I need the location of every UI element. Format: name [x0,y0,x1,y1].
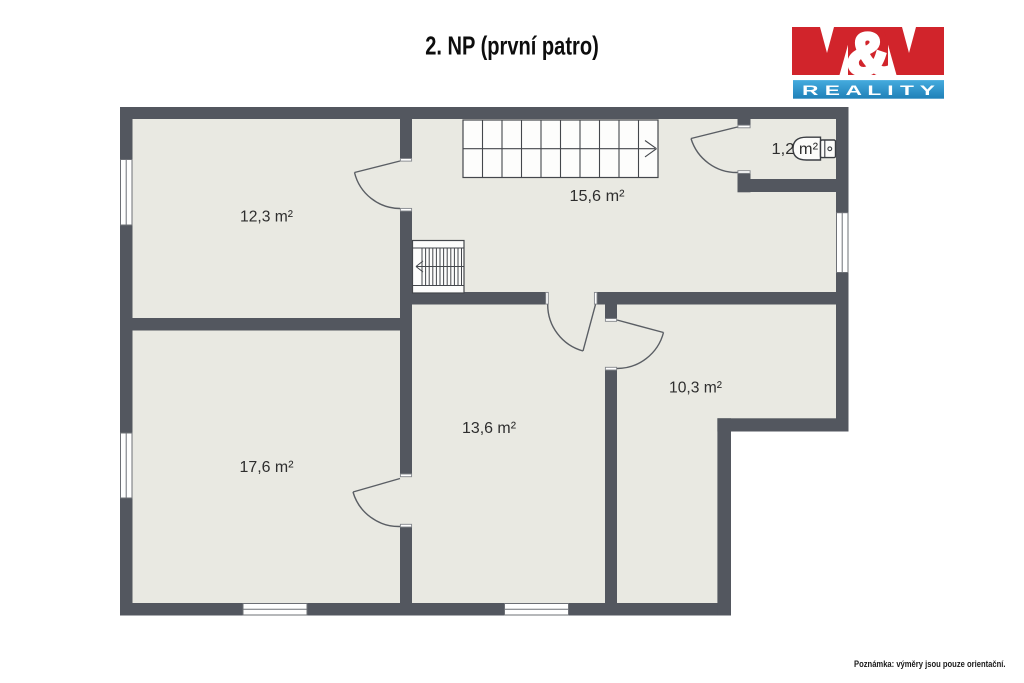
svg-text:13,6 m²: 13,6 m² [462,420,517,437]
svg-text:15,6 m²: 15,6 m² [570,188,626,205]
svg-text:Poznámka: výměry jsou pouze or: Poznámka: výměry jsou pouze orientační. [854,659,1006,669]
svg-text:17,6 m²: 17,6 m² [240,459,295,476]
svg-text:2. NP (první patro): 2. NP (první patro) [425,30,599,60]
svg-text:R E A L I T Y: R E A L I T Y [802,83,935,98]
svg-text:10,3 m²: 10,3 m² [669,380,723,397]
svg-text:12,3 m²: 12,3 m² [240,209,294,226]
svg-text:1,2 m²: 1,2 m² [772,141,819,158]
svg-text:&: & [847,22,889,87]
